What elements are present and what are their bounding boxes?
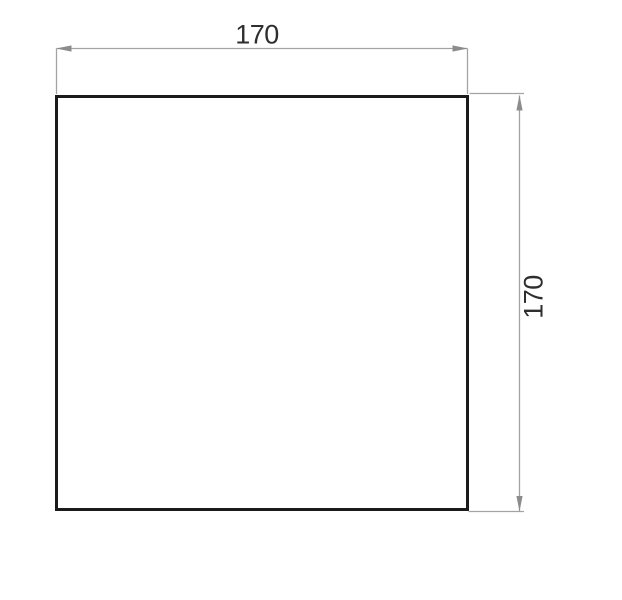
arrow-right-icon — [453, 45, 469, 51]
height-dimension-label: 170 — [521, 275, 548, 319]
arrow-down-icon — [516, 496, 522, 512]
square-outline — [55, 95, 469, 511]
arrow-left-icon — [56, 45, 72, 51]
arrow-up-icon — [516, 95, 522, 111]
drawing-canvas: 170 170 — [0, 0, 622, 600]
width-dimension-label: 170 — [235, 22, 279, 49]
